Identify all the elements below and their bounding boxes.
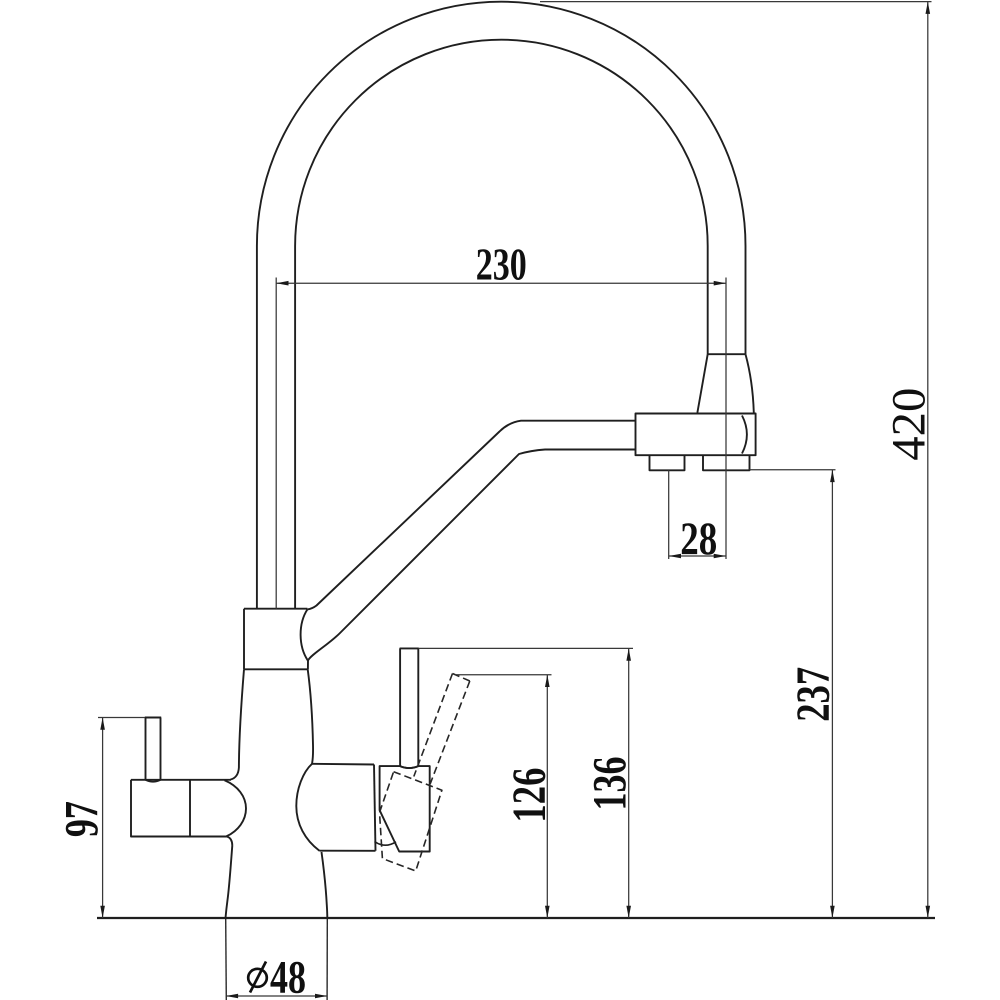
svg-text:48: 48: [270, 951, 306, 1000]
svg-text:237: 237: [787, 667, 840, 722]
svg-text:126: 126: [503, 768, 556, 823]
svg-text:97: 97: [56, 801, 109, 837]
svg-text:28: 28: [680, 513, 717, 565]
svg-text:230: 230: [476, 240, 527, 290]
svg-text:136: 136: [583, 757, 636, 811]
svg-text:420: 420: [883, 388, 936, 461]
